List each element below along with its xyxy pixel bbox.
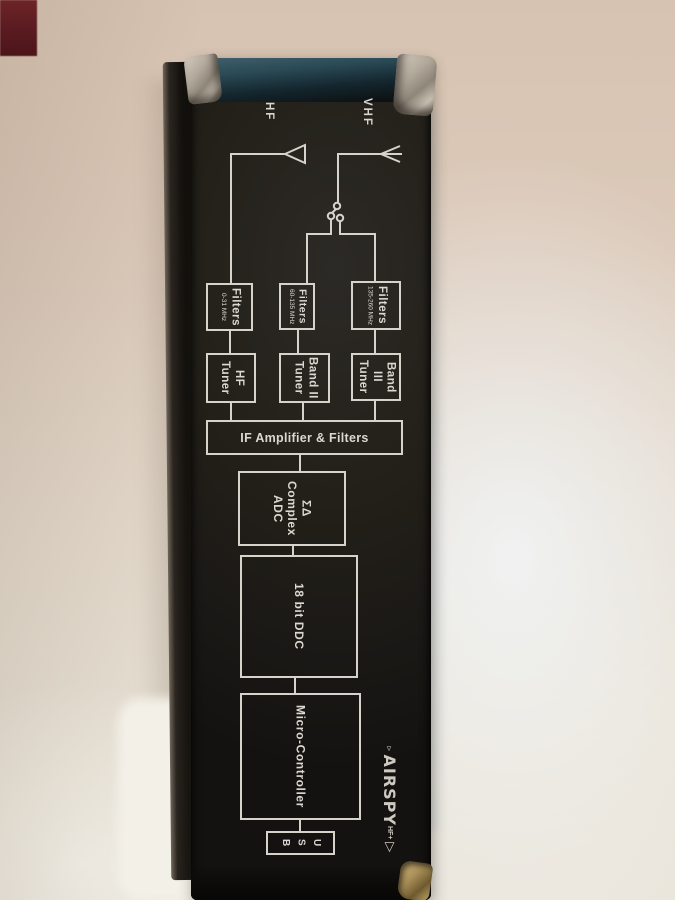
antenna-icon bbox=[381, 146, 402, 162]
filter-range: 60-135 MHz bbox=[286, 289, 296, 324]
antenna-icon: ▽ bbox=[382, 839, 397, 855]
block-diagram: HF VHF bbox=[191, 58, 431, 900]
tuner-line2: Tuner bbox=[291, 357, 305, 399]
microcontroller-label: Micro-Controller bbox=[293, 705, 307, 808]
usb-letter: B bbox=[277, 839, 293, 847]
tuner-line1: Band III bbox=[369, 355, 397, 399]
usb-letter: S bbox=[293, 839, 309, 847]
brand-variant: HF+ bbox=[386, 826, 393, 839]
tuner-line1: HF bbox=[231, 361, 245, 395]
switch-branch-left bbox=[307, 219, 331, 283]
antenna-icon: ▿ bbox=[384, 744, 394, 755]
if-amplifier-block: IF Amplifier & Filters bbox=[206, 420, 403, 455]
filter-range: 0-31 MHz bbox=[217, 288, 227, 326]
filter-block-hf: Filters 0-31 MHz bbox=[206, 283, 253, 331]
usb-letter: U bbox=[308, 839, 324, 847]
tuner-block-band3: Band III Tuner bbox=[351, 353, 401, 401]
filter-title: Filters bbox=[228, 288, 242, 326]
tuner-line2: Tuner bbox=[355, 355, 369, 399]
brand-name: AIRSPY bbox=[380, 754, 399, 826]
adc-line2: Complex bbox=[285, 481, 299, 536]
usb-block: U S B bbox=[266, 831, 335, 855]
airspy-logo: ▿AIRSPYHF+▽ bbox=[369, 730, 409, 868]
switch-branch-right bbox=[340, 221, 375, 281]
tuner-block-band2: Band II Tuner bbox=[279, 353, 330, 403]
photo-scene: 10 HF VHF bbox=[0, 0, 675, 900]
microcontroller-block: Micro-Controller bbox=[240, 693, 361, 820]
filter-title: Filters bbox=[296, 289, 309, 324]
tuner-line1: Band II bbox=[305, 357, 319, 399]
hf-wire bbox=[231, 154, 285, 283]
tuner-line2: Tuner bbox=[217, 361, 231, 395]
adc-line3: ADC bbox=[270, 481, 284, 536]
adc-line1: ΣΔ bbox=[299, 481, 313, 536]
adc-block: ΣΔ Complex ADC bbox=[238, 471, 346, 546]
product-box: HF VHF bbox=[191, 58, 431, 900]
filter-block-band2: Filters 60-135 MHz bbox=[279, 283, 315, 330]
spdt-switch-icon bbox=[328, 203, 343, 221]
filter-block-band3: Filters 135-260 MHz bbox=[351, 281, 401, 330]
ddc-label: 18 bit DDC bbox=[292, 583, 306, 650]
ddc-block: 18 bit DDC bbox=[240, 555, 358, 678]
antenna-icon bbox=[285, 145, 305, 163]
filter-range: 135-260 MHz bbox=[364, 286, 374, 325]
tuner-block-hf: HF Tuner bbox=[206, 353, 256, 403]
corner-red-patch bbox=[0, 0, 37, 56]
if-amplifier-label: IF Amplifier & Filters bbox=[240, 431, 368, 445]
filter-title: Filters bbox=[374, 286, 388, 325]
vhf-wire bbox=[338, 154, 381, 202]
